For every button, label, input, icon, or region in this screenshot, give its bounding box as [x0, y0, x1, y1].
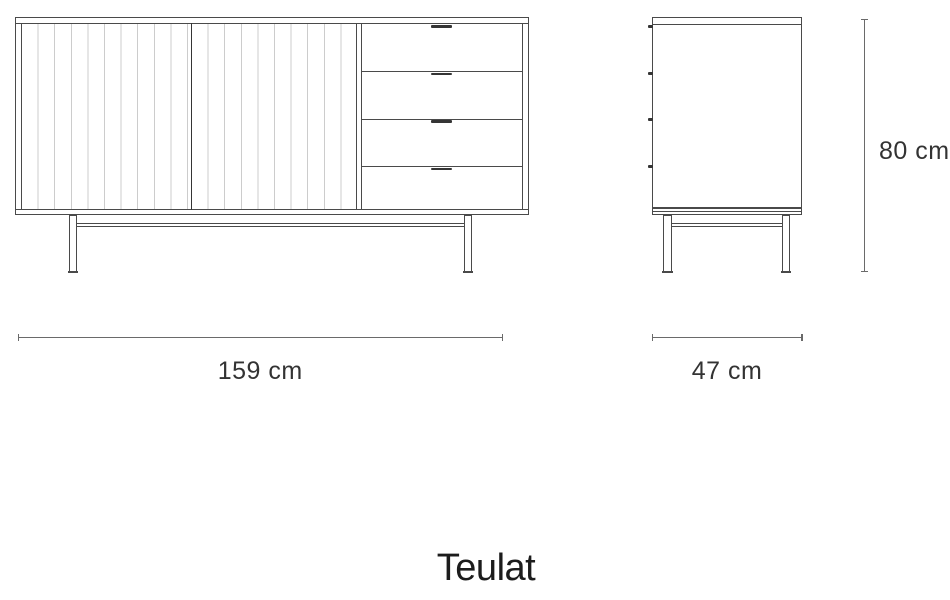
diagram-canvas: 159 cm 47 cm 80 cm Teulat: [0, 0, 950, 600]
side-bottom-edge-line: [653, 211, 801, 212]
side-leg-rail: [672, 223, 782, 227]
depth-dimension-label: 47 cm: [652, 357, 802, 386]
dimension-tick: [861, 19, 868, 20]
front-drawer-section-divider-line: [356, 23, 357, 210]
side-handle-nub: [648, 25, 653, 28]
dimension-tick: [18, 334, 19, 341]
side-top-panel-line: [653, 24, 801, 25]
dimension-tick: [801, 334, 802, 341]
dimension-tick: [861, 271, 868, 272]
front-foot-right: [463, 271, 474, 274]
drawer-separator: [362, 166, 523, 167]
width-dimension-line: [18, 337, 503, 338]
front-leg-left: [69, 215, 78, 272]
drawer-handle: [431, 168, 452, 171]
side-foot-front: [662, 271, 673, 274]
side-handle-nub: [648, 118, 653, 121]
height-dimension-label: 80 cm: [879, 137, 950, 166]
drawer-separator: [362, 71, 523, 72]
front-foot-left: [68, 271, 79, 274]
side-leg-front: [663, 215, 672, 272]
side-foot-rear: [781, 271, 792, 274]
drawer-handle: [431, 25, 452, 28]
side-handle-nub: [648, 72, 653, 75]
front-door-left-slats: [22, 24, 190, 209]
depth-dimension-line: [652, 337, 802, 338]
side-leg-rear: [782, 215, 791, 272]
side-handle-nub: [648, 165, 653, 168]
width-dimension-label: 159 cm: [18, 357, 503, 386]
drawer-handle: [431, 120, 452, 123]
front-door-right-slats: [192, 24, 355, 209]
dimension-tick: [652, 334, 653, 341]
height-dimension-line: [864, 19, 865, 272]
drawer-handle: [431, 73, 452, 76]
front-leg-right: [464, 215, 473, 272]
front-view-cabinet: [15, 17, 529, 215]
front-leg-rail: [77, 223, 464, 227]
brand-logo: Teulat: [375, 547, 597, 590]
dimension-tick: [502, 334, 503, 341]
side-bottom-panel-line: [653, 207, 801, 208]
side-view-cabinet: [652, 17, 802, 215]
front-drawer-panel: [361, 24, 523, 210]
